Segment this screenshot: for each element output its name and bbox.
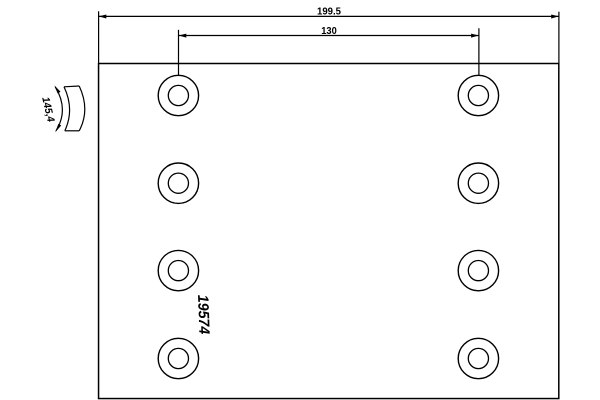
svg-text:199.5: 199.5 [317,6,341,18]
svg-text:19574: 19574 [194,294,212,335]
svg-text:130: 130 [321,25,337,37]
